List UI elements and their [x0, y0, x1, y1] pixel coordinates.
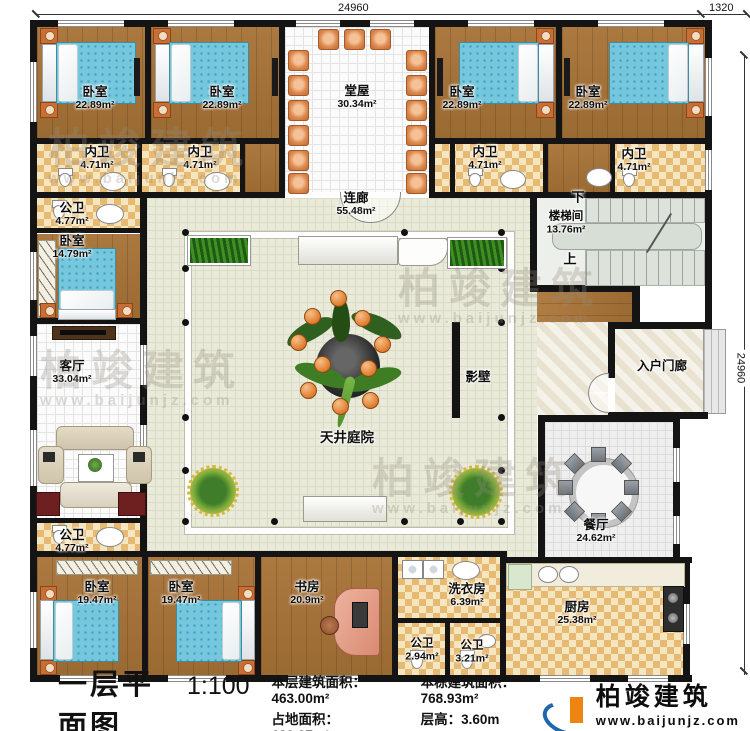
bench-bottom — [303, 496, 387, 522]
room-label-bedroom-bl2: 卧室19.47m² — [161, 580, 200, 606]
area-stats: 本层建筑面积：463.00m² 本栋建筑面积：768.93m² 占地面积：639… — [272, 671, 544, 731]
room-label-canting: 餐厅24.62m² — [576, 518, 615, 544]
plan-scale: 1:100 — [187, 672, 250, 701]
room-label-loutijian: 楼梯间13.76m² — [546, 210, 585, 235]
room-label-gongwei-b2: 公卫3.21m² — [455, 639, 488, 664]
brand-logo-icon — [544, 685, 588, 729]
room-label-neiwei-1: 内卫4.71m² — [80, 145, 113, 171]
washer — [402, 560, 423, 579]
room-label-bedroom-bl1: 卧室19.47m² — [77, 580, 116, 606]
stat-floor-area: 本层建筑面积：463.00m² — [272, 671, 395, 706]
dim-top-right: 1320 — [706, 2, 736, 14]
title-block: 一层平面图 1:100 本层建筑面积：463.00m² 本栋建筑面积：768.9… — [0, 682, 750, 731]
floor-corridor-stair — [537, 292, 632, 322]
stair-flight-lower — [585, 250, 705, 286]
courtyard-tree — [288, 292, 398, 430]
planter-top-right — [448, 238, 506, 268]
plant-bottom-right — [452, 468, 500, 516]
plan-title-text: 一层平面图 — [58, 661, 177, 731]
room-label-chufang: 厨房25.38m² — [557, 600, 596, 626]
seat-curved — [398, 238, 448, 266]
room-label-lianlang: 连廊55.48m² — [336, 191, 375, 217]
room-label-bedroom-tr2: 卧室22.89m² — [568, 85, 607, 111]
room-label-tianjing: 天井庭院 — [320, 430, 374, 446]
dim-line-top — [35, 14, 701, 15]
stat-total-area: 本栋建筑面积：768.93m² — [421, 671, 544, 706]
sofa-keting — [36, 424, 144, 516]
room-label-neiwei-4: 内卫4.71m² — [617, 147, 650, 173]
stat-floor-height: 层高：3.60m — [421, 708, 544, 731]
room-label-neiwei-3: 内卫4.71m² — [468, 145, 501, 171]
tv-keting — [60, 330, 106, 335]
brand-url: www.baijunjz.com — [596, 713, 740, 728]
bench-top — [298, 236, 398, 265]
brand-logo: 柏竣建筑 www.baijunjz.com — [544, 685, 740, 729]
stair-down-label: 下 — [571, 191, 584, 206]
stair-up-label: 上 — [563, 253, 576, 268]
dim-right: 24960 — [734, 350, 746, 387]
kitchen-counter — [506, 563, 685, 587]
plan-title: 一层平面图 1:100 — [52, 661, 256, 731]
floor-plan: 卧室22.89m² 卧室22.89m² 堂屋30.34m² 卧室22.89m² … — [0, 0, 750, 731]
kitchen-stove — [663, 586, 684, 632]
room-label-xiyifang: 洗衣房6.39m² — [448, 582, 486, 608]
room-label-gongwei-tl: 公卫4.77m² — [55, 201, 88, 227]
dining-chair — [624, 480, 639, 495]
room-label-gongwei-bl: 公卫4.77m² — [55, 528, 88, 554]
stat-land-area: 占地面积：639.07m² — [272, 708, 395, 731]
tv-bedroom-tl1 — [134, 58, 140, 96]
porch-steps — [703, 329, 726, 414]
room-label-bedroom-tr1: 卧室22.89m² — [442, 85, 481, 111]
room-label-shufang: 书房20.9m² — [290, 580, 323, 606]
plant-bottom-left — [190, 468, 236, 514]
planter-top-left — [188, 236, 250, 265]
dim-top: 24960 — [335, 2, 372, 14]
study-monitor — [352, 602, 368, 628]
room-label-ruhumenlang: 入户门廊 — [637, 359, 687, 373]
brand-name: 柏竣建筑 — [596, 685, 740, 710]
room-label-yingbi: 影壁 — [465, 370, 490, 384]
room-label-gongwei-b1: 公卫2.94m² — [405, 637, 438, 662]
room-label-bedroom-left: 卧室14.79m² — [52, 234, 91, 260]
room-label-neiwei-2: 内卫4.71m² — [183, 145, 216, 171]
tv-bedroom-tl2 — [272, 58, 278, 96]
room-label-keting: 客厅33.04m² — [52, 359, 91, 385]
yingbi-wall — [452, 322, 460, 418]
stair-flight-upper — [585, 198, 705, 223]
tangwu-chair — [318, 29, 339, 50]
floor-hall-left — [245, 144, 279, 194]
room-label-tangwu: 堂屋30.34m² — [337, 84, 376, 110]
kitchen-fridge — [508, 564, 532, 590]
dim-line-top-right — [703, 14, 748, 15]
room-label-bedroom-tl2: 卧室22.89m² — [202, 85, 241, 111]
washer — [423, 560, 444, 579]
room-label-bedroom-tl1: 卧室22.89m² — [75, 85, 114, 111]
study-chair — [320, 616, 339, 635]
